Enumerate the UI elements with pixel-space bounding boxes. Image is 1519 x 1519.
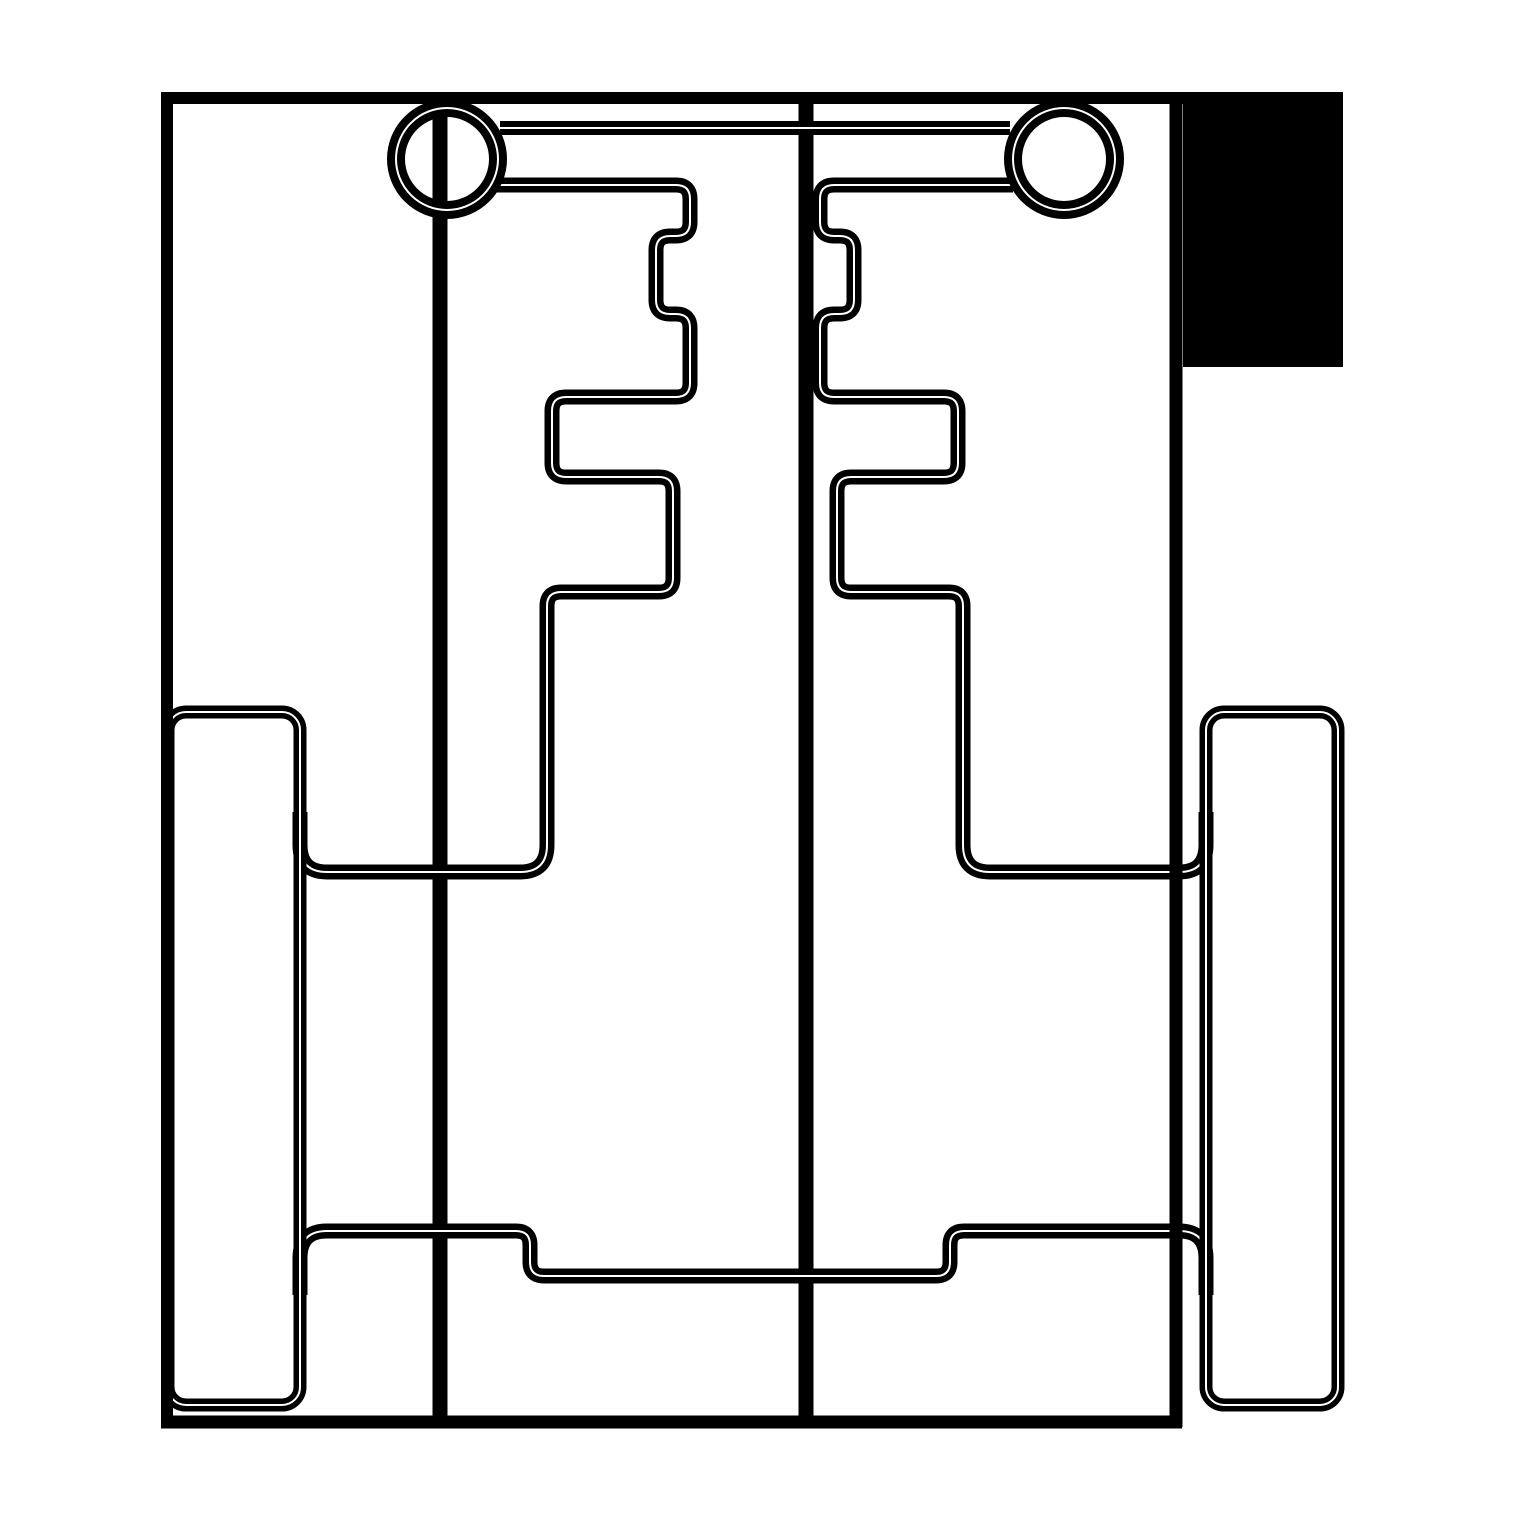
right-wheel-circle-kerf-line bbox=[1013, 108, 1115, 210]
right-foot-rounded-rect-kerf-line bbox=[1206, 712, 1338, 1405]
technical-line-drawing-page bbox=[0, 0, 1519, 1519]
filled-corner-block bbox=[1183, 92, 1343, 367]
cad-drawing-canvas bbox=[0, 0, 1519, 1519]
right-foot-rounded-rect bbox=[1206, 712, 1338, 1405]
right-keyway-path-kerf-line bbox=[820, 185, 1206, 872]
left-keyway-path bbox=[300, 185, 690, 872]
left-foot-rounded-rect bbox=[168, 712, 300, 1405]
left-keyway-path-kerf-line bbox=[300, 185, 690, 872]
right-keyway-path bbox=[820, 185, 1206, 872]
left-foot-rounded-rect-kerf-line bbox=[168, 712, 300, 1405]
